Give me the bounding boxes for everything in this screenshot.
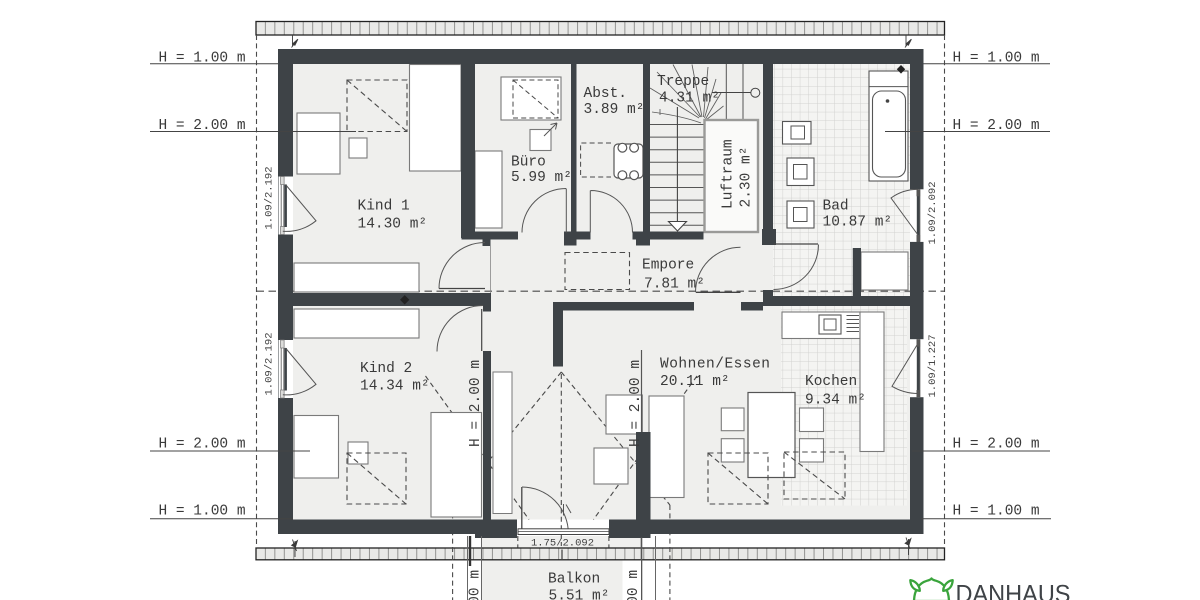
svg-text:H = 2.00 m: H = 2.00 m xyxy=(626,570,642,600)
svg-text:3.89 m²: 3.89 m² xyxy=(584,102,645,118)
svg-text:14.30 m²: 14.30 m² xyxy=(358,217,428,233)
svg-text:H = 2.00 m: H = 2.00 m xyxy=(468,360,484,447)
svg-text:Büro: Büro xyxy=(511,155,546,171)
svg-text:H = 2.00 m: H = 2.00 m xyxy=(628,360,644,447)
svg-text:Treppe: Treppe xyxy=(657,74,709,90)
svg-text:5.99 m²: 5.99 m² xyxy=(511,170,572,186)
svg-text:H = 1.00 m: H = 1.00 m xyxy=(953,51,1040,67)
svg-text:4.31 m²: 4.31 m² xyxy=(659,91,720,107)
svg-text:H = 1.00 m: H = 1.00 m xyxy=(953,504,1040,520)
svg-text:2.30 m²: 2.30 m² xyxy=(739,147,755,208)
svg-text:H = 2.00 m: H = 2.00 m xyxy=(953,118,1040,134)
svg-text:Kochen: Kochen xyxy=(805,374,857,390)
svg-text:9.34 m²: 9.34 m² xyxy=(805,393,866,409)
svg-text:DANHAUS: DANHAUS xyxy=(956,581,1071,600)
svg-text:Empore: Empore xyxy=(642,258,694,274)
svg-text:Kind 2: Kind 2 xyxy=(360,361,412,377)
svg-text:Balkon: Balkon xyxy=(548,572,600,588)
svg-text:1.09/2.092: 1.09/2.092 xyxy=(927,181,939,244)
svg-text:1.09/2.192: 1.09/2.192 xyxy=(264,332,276,395)
svg-text:Wohnen/Essen: Wohnen/Essen xyxy=(660,357,770,373)
svg-text:5.51 m²: 5.51 m² xyxy=(549,589,610,600)
svg-text:Luftraum: Luftraum xyxy=(721,139,737,209)
svg-text:H = 2.00 m: H = 2.00 m xyxy=(953,437,1040,453)
svg-text:H = 2.00 m: H = 2.00 m xyxy=(159,118,246,134)
svg-text:1.09/1.227: 1.09/1.227 xyxy=(927,334,939,397)
svg-text:7.81 m²: 7.81 m² xyxy=(644,277,705,293)
svg-text:20.11 m²: 20.11 m² xyxy=(660,374,730,390)
svg-text:1.09/2.192: 1.09/2.192 xyxy=(264,166,276,229)
svg-text:10.87 m²: 10.87 m² xyxy=(823,215,893,231)
svg-text:Kind 1: Kind 1 xyxy=(358,199,410,215)
svg-text:14.34 m²: 14.34 m² xyxy=(360,379,430,395)
svg-text:H = 2.00 m: H = 2.00 m xyxy=(159,437,246,453)
svg-text:Abst.: Abst. xyxy=(584,86,628,102)
svg-text:1.75/2.092: 1.75/2.092 xyxy=(531,538,594,550)
svg-text:H = 2.00 m: H = 2.00 m xyxy=(468,570,484,600)
svg-text:H = 1.00 m: H = 1.00 m xyxy=(159,504,246,520)
svg-text:Bad: Bad xyxy=(823,199,849,215)
svg-text:H = 1.00 m: H = 1.00 m xyxy=(159,51,246,67)
